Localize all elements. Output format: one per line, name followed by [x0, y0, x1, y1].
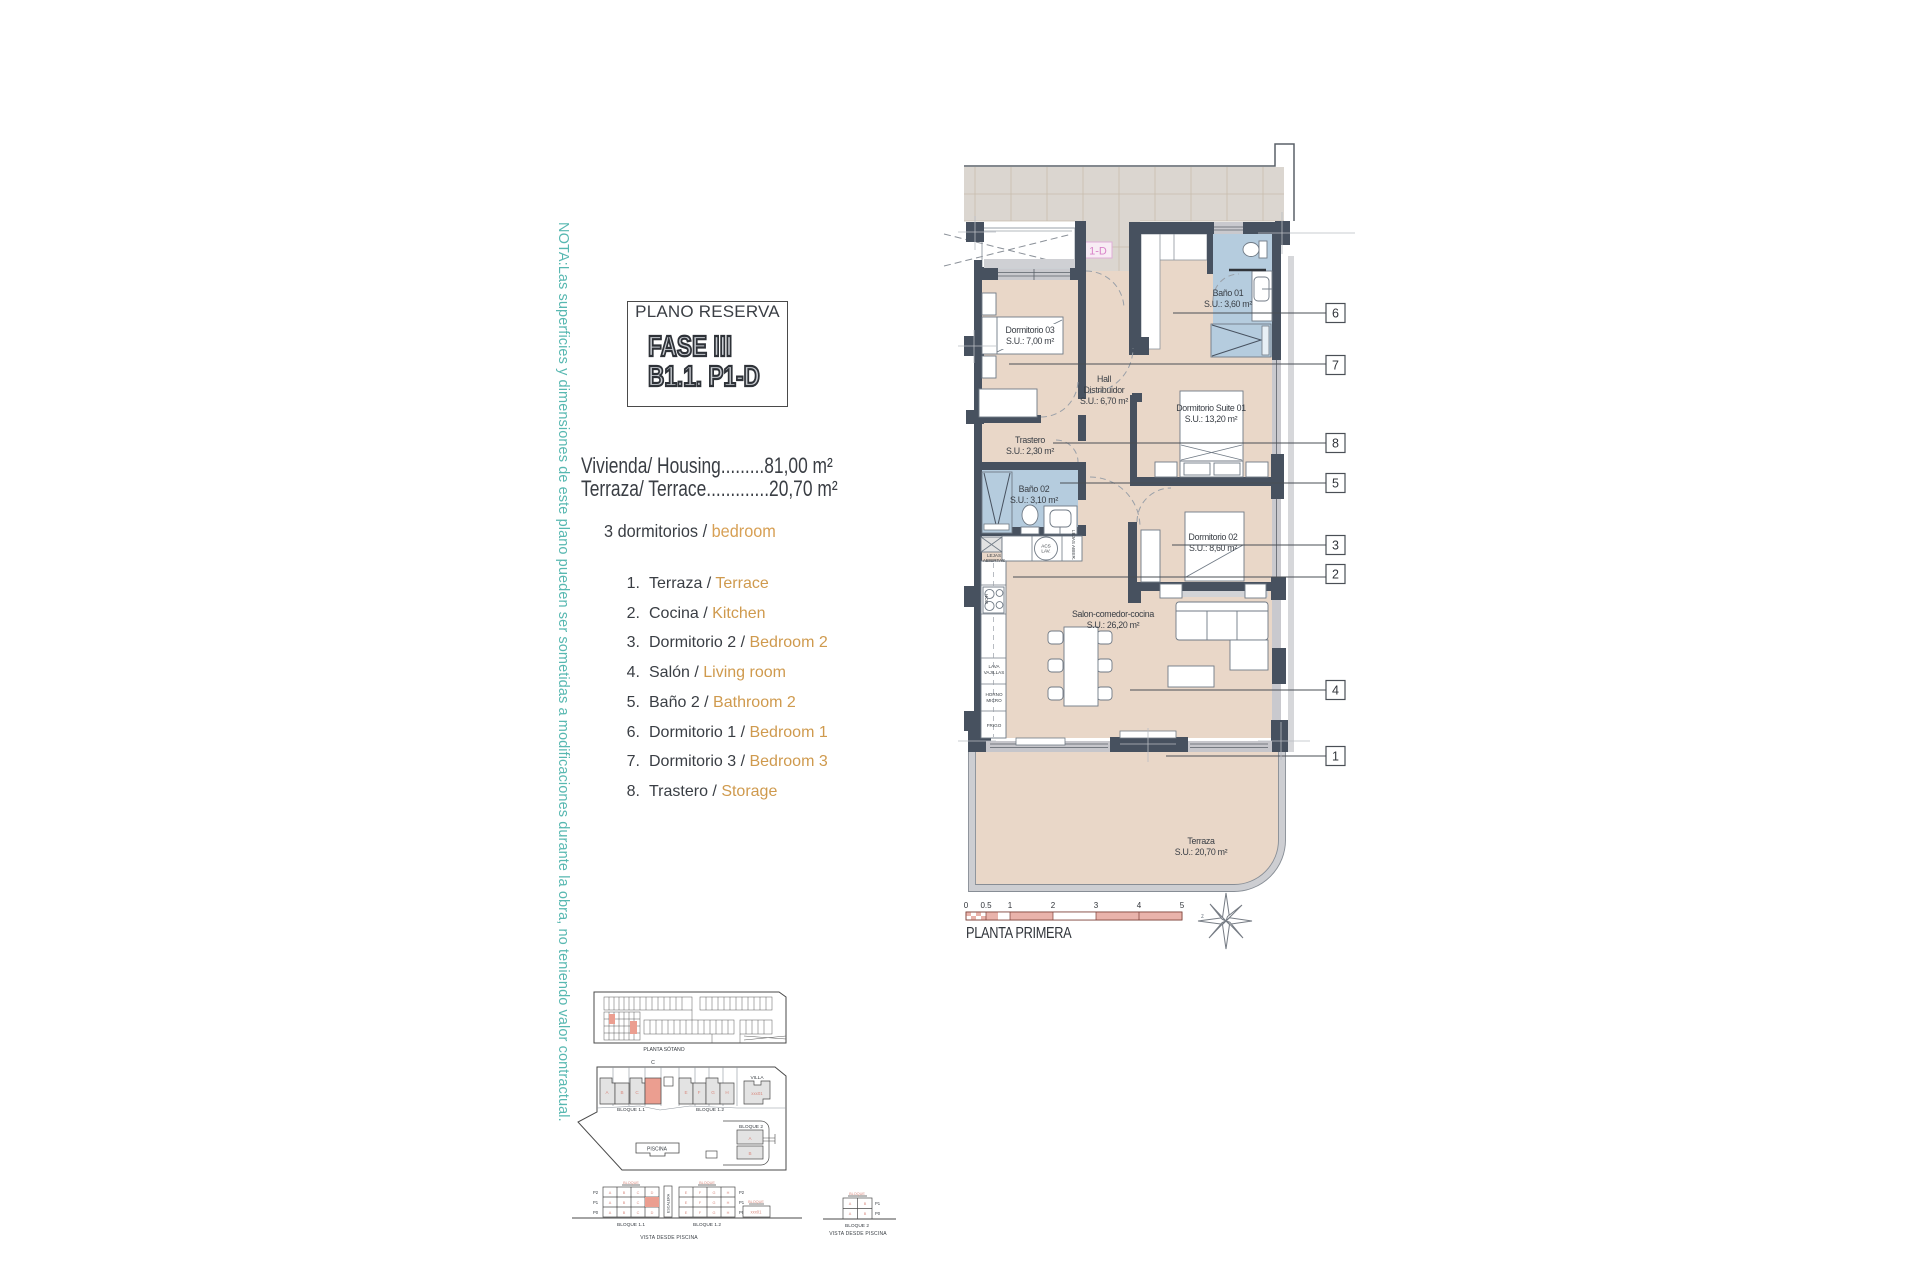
- svg-text:BLOQUE 1.2: BLOQUE 1.2: [696, 1107, 724, 1113]
- svg-text:P1: P1: [875, 1201, 881, 1206]
- svg-text:D: D: [651, 1191, 654, 1195]
- svg-text:BLOQUE: BLOQUE: [623, 1181, 639, 1185]
- svg-text:B: B: [623, 1191, 626, 1195]
- svg-text:VILLA: VILLA: [750, 1075, 764, 1081]
- svg-text:A: A: [849, 1202, 852, 1206]
- svg-text:B: B: [748, 1151, 751, 1156]
- svg-text:E: E: [684, 1090, 687, 1095]
- svg-text:E: E: [685, 1211, 688, 1215]
- svg-text:BLOQUE 1.2: BLOQUE 1.2: [693, 1222, 721, 1228]
- svg-text:2: 2: [1332, 568, 1339, 582]
- svg-text:C: C: [651, 1060, 655, 1066]
- svg-text:BLOQUE: BLOQUE: [849, 1192, 865, 1196]
- svg-text:HORNO: HORNO: [985, 692, 1003, 697]
- svg-text:PISCINA: PISCINA: [647, 1147, 668, 1153]
- svg-text:HOB: HOB: [984, 594, 989, 604]
- svg-text:BLOQUE 1.1: BLOQUE 1.1: [617, 1107, 645, 1113]
- svg-text:P0: P0: [593, 1210, 599, 1215]
- svg-text:ESCALERA: ESCALERA: [667, 1193, 671, 1213]
- svg-text:Terraza: Terraza: [1187, 836, 1215, 846]
- svg-text:FRIGO: FRIGO: [987, 723, 1002, 728]
- svg-text:2: 2: [1051, 901, 1056, 910]
- svg-text:B: B: [623, 1211, 626, 1215]
- svg-text:LAV.: LAV.: [1041, 549, 1050, 554]
- svg-text:0: 0: [964, 901, 969, 910]
- svg-text:B: B: [864, 1212, 867, 1216]
- svg-text:Baño 01: Baño 01: [1213, 288, 1244, 298]
- svg-text:H: H: [727, 1201, 730, 1205]
- svg-text:1: 1: [1332, 750, 1339, 764]
- svg-text:5: 5: [1332, 477, 1339, 491]
- svg-text:E: E: [685, 1191, 688, 1195]
- svg-text:MICRO: MICRO: [986, 698, 1002, 703]
- svg-text:E: E: [685, 1201, 688, 1205]
- svg-text:Salon-comedor-cocina: Salon-comedor-cocina: [1072, 609, 1154, 619]
- svg-text:BLOQUE 2: BLOQUE 2: [739, 1124, 763, 1130]
- svg-text:H: H: [725, 1090, 728, 1095]
- svg-text:0.5: 0.5: [980, 901, 992, 910]
- svg-text:Dormitorio Suite 01: Dormitorio Suite 01: [1176, 403, 1246, 413]
- svg-text:P2: P2: [739, 1190, 745, 1195]
- svg-text:BLOQUE: BLOQUE: [699, 1181, 715, 1185]
- svg-text:G: G: [711, 1090, 715, 1095]
- svg-text:C: C: [637, 1211, 640, 1215]
- svg-text:P0: P0: [875, 1211, 881, 1216]
- svg-text:H: H: [727, 1211, 730, 1215]
- svg-text:S.U.: 13,20 m²: S.U.: 13,20 m²: [1185, 414, 1238, 424]
- svg-text:G: G: [713, 1211, 716, 1215]
- svg-text:3: 3: [1332, 539, 1339, 553]
- svg-text:5: 5: [1180, 901, 1185, 910]
- svg-text:6: 6: [1332, 307, 1339, 321]
- svg-text:PLANTA PRIMERA: PLANTA PRIMERA: [966, 925, 1072, 943]
- svg-text:BLOQUE: BLOQUE: [748, 1200, 764, 1204]
- svg-text:S.U.: 26,20 m²: S.U.: 26,20 m²: [1087, 620, 1140, 630]
- svg-text:xxx01: xxx01: [751, 1210, 763, 1215]
- svg-text:4: 4: [1137, 901, 1142, 910]
- svg-text:LEJAS ABIER.: LEJAS ABIER.: [1071, 530, 1076, 560]
- svg-text:1: 1: [1008, 901, 1013, 910]
- svg-text:S.U.: 2,30 m²: S.U.: 2,30 m²: [1006, 446, 1054, 456]
- svg-text:G: G: [713, 1191, 716, 1195]
- svg-text:S.U.: 3,60 m²: S.U.: 3,60 m²: [1204, 299, 1252, 309]
- svg-text:B: B: [623, 1201, 626, 1205]
- svg-text:PLANTA SÓTANO: PLANTA SÓTANO: [643, 1046, 684, 1053]
- svg-text:8: 8: [1332, 437, 1339, 451]
- svg-text:S.U.: 8,60 m²: S.U.: 8,60 m²: [1189, 543, 1237, 553]
- svg-text:C: C: [637, 1201, 640, 1205]
- svg-text:S.U.: 6,70 m²: S.U.: 6,70 m²: [1080, 396, 1128, 406]
- svg-text:G: G: [713, 1201, 716, 1205]
- svg-text:P1: P1: [739, 1200, 745, 1205]
- svg-text:Distribuidor: Distribuidor: [1084, 385, 1125, 395]
- svg-text:A: A: [849, 1212, 852, 1216]
- svg-text:3: 3: [1094, 901, 1099, 910]
- svg-text:ABIERTAS: ABIERTAS: [983, 558, 1005, 563]
- svg-text:A: A: [609, 1211, 612, 1215]
- svg-text:7: 7: [1332, 359, 1339, 373]
- svg-text:4: 4: [1332, 684, 1339, 698]
- svg-text:S.U.: 7,00 m²: S.U.: 7,00 m²: [1006, 336, 1054, 346]
- svg-text:VISTA DESDE PISCINA: VISTA DESDE PISCINA: [829, 1231, 887, 1237]
- svg-text:VISTA DESDE PISCINA: VISTA DESDE PISCINA: [640, 1235, 698, 1241]
- svg-text:LAVA: LAVA: [988, 664, 1000, 669]
- svg-text:Trastero: Trastero: [1015, 435, 1045, 445]
- svg-text:1-D: 1-D: [1089, 246, 1107, 258]
- svg-text:B: B: [620, 1090, 623, 1095]
- svg-text:z: z: [1201, 914, 1204, 920]
- svg-text:P1: P1: [593, 1200, 599, 1205]
- svg-text:BLOQUE 1.1: BLOQUE 1.1: [617, 1222, 645, 1228]
- svg-text:Dormitorio 02: Dormitorio 02: [1189, 532, 1238, 542]
- svg-text:VAJILLAS: VAJILLAS: [984, 670, 1005, 675]
- svg-text:BLOQUE 2: BLOQUE 2: [845, 1223, 869, 1229]
- svg-text:D: D: [651, 1211, 654, 1215]
- svg-text:H: H: [727, 1191, 730, 1195]
- svg-text:A: A: [609, 1201, 612, 1205]
- svg-text:Baño 02: Baño 02: [1019, 484, 1050, 494]
- svg-text:S.U.: 20,70 m²: S.U.: 20,70 m²: [1175, 847, 1228, 857]
- svg-text:F: F: [698, 1090, 701, 1095]
- svg-text:Dormitorio 03: Dormitorio 03: [1006, 325, 1055, 335]
- svg-text:B: B: [864, 1202, 867, 1206]
- svg-text:C: C: [637, 1191, 640, 1195]
- svg-text:A: A: [609, 1191, 612, 1195]
- svg-text:xxx01: xxx01: [751, 1091, 763, 1096]
- svg-text:Hall: Hall: [1097, 374, 1111, 384]
- svg-text:P2: P2: [593, 1190, 599, 1195]
- svg-text:S.U.: 3,10 m²: S.U.: 3,10 m²: [1010, 495, 1058, 505]
